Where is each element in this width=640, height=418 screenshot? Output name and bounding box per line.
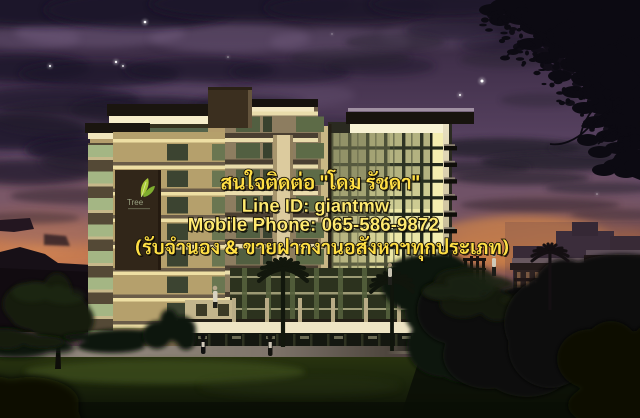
svg-text:Tree: Tree <box>127 198 144 207</box>
